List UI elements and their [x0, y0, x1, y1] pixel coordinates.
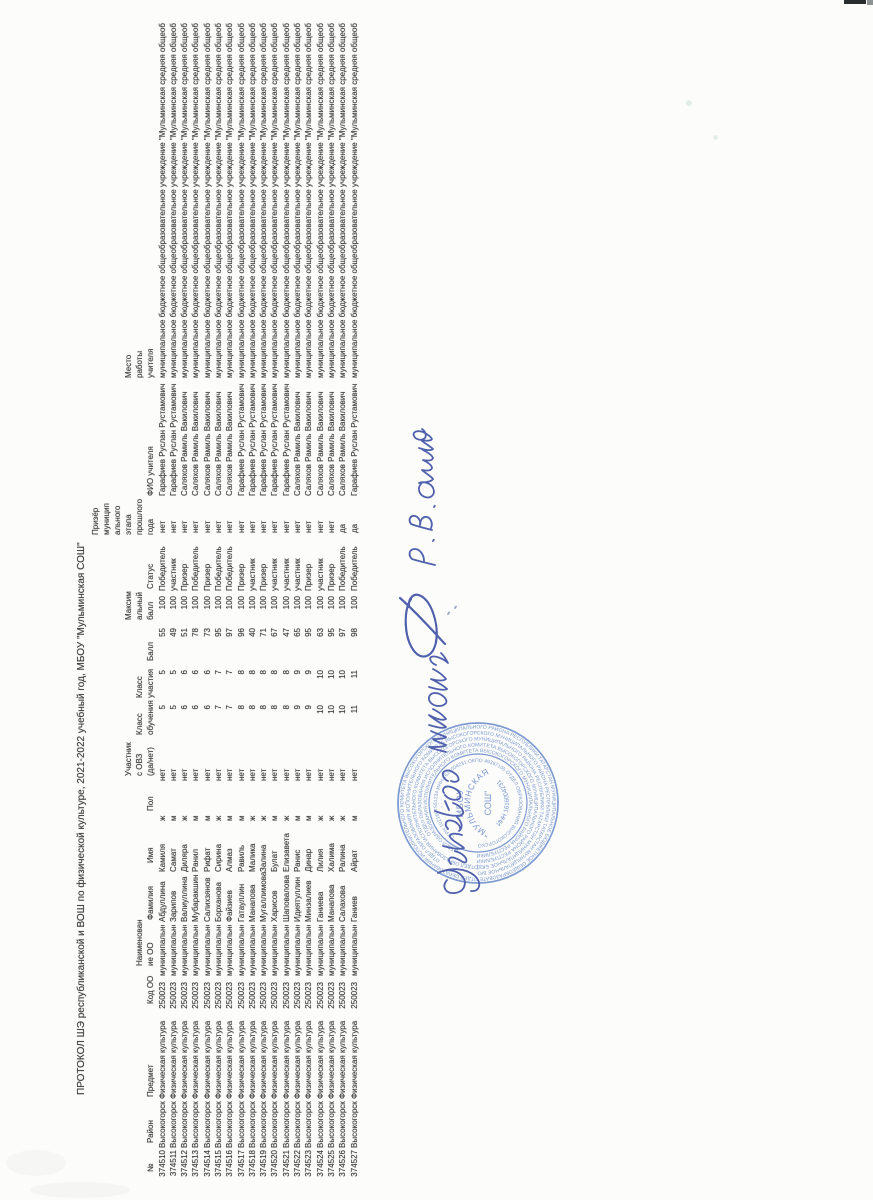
svg-text:. : .: . : . — [437, 798, 444, 808]
svg-text:СОШ": СОШ" — [483, 791, 493, 816]
svg-text:ОТДЕЛ ОБРАЗОВАНИЯ ИСПОЛНИТЕЛЬН: ОТДЕЛ ОБРАЗОВАНИЯ ИСПОЛНИТЕЛЬНОГО КОМИТЕ… — [411, 736, 544, 869]
svg-text:ИНН 1616004231: ИНН 1616004231 — [495, 778, 511, 828]
